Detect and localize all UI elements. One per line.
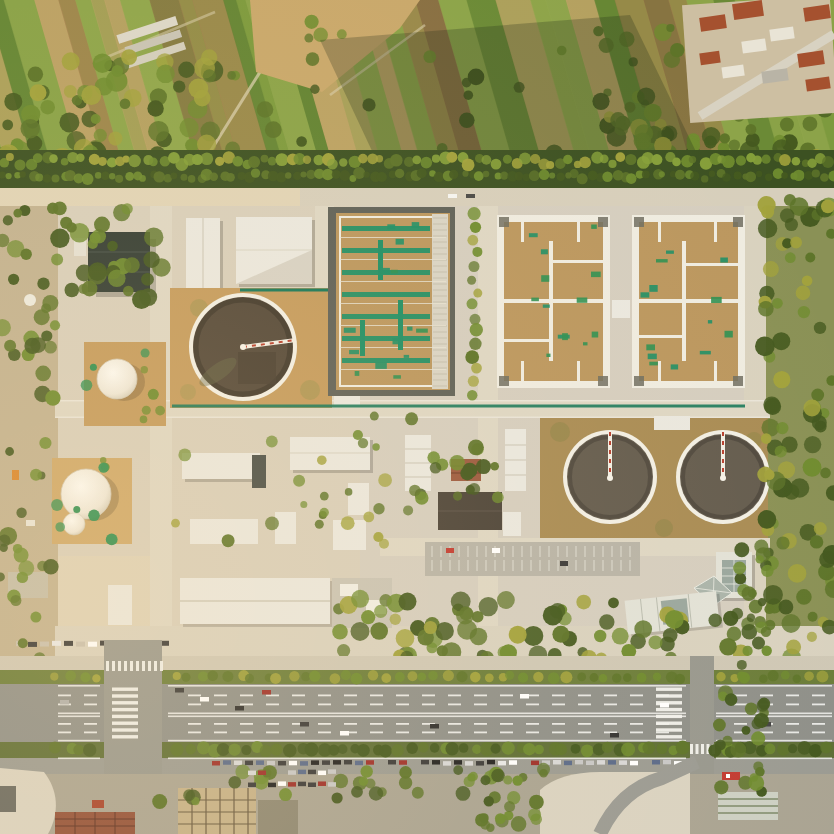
golden-hour-overlay [0,0,834,834]
aerial-photo-canvas [0,0,834,834]
aerial-photo-stage [0,0,834,834]
